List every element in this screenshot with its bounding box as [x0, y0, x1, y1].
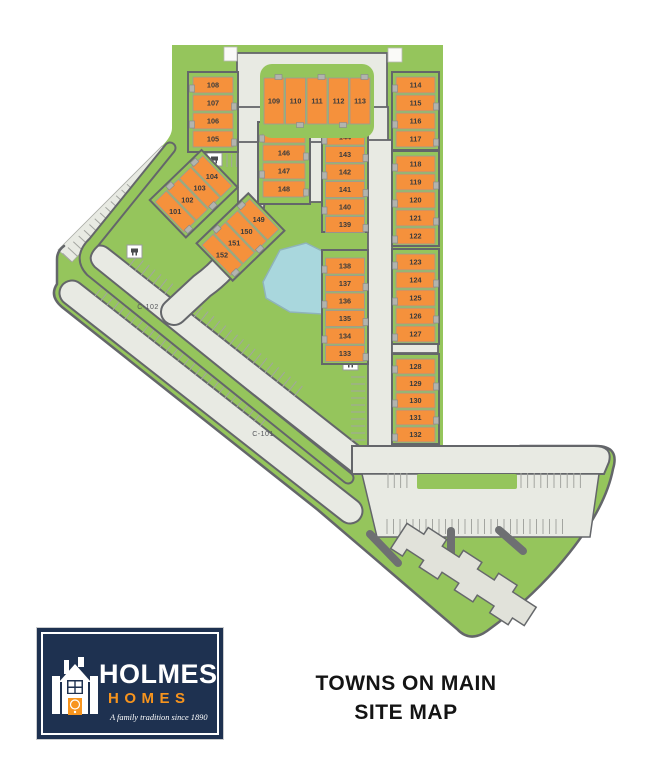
unit-label-112: 112	[333, 97, 345, 106]
block-b3: 114115116117	[392, 72, 439, 150]
block-b9: 128129130131132	[392, 354, 439, 444]
title-line-2: SITE MAP	[276, 701, 536, 725]
unit-label-146: 146	[278, 149, 290, 158]
road-main-vertical	[368, 140, 392, 448]
logo-brand2-text: HOMES	[108, 691, 191, 706]
unit-label-123: 123	[409, 258, 421, 267]
unit-label-115: 115	[410, 99, 422, 108]
parking-island	[417, 474, 517, 489]
site-map-page: 1081071061051141151161171451461471481441…	[0, 0, 659, 768]
unit-label-129: 129	[409, 379, 421, 388]
unit-label-111: 111	[311, 97, 322, 106]
unit-label-101: 101	[169, 207, 181, 216]
unit-label-109: 109	[268, 97, 280, 106]
unit-label-113: 113	[354, 97, 366, 106]
unit-label-135: 135	[339, 314, 351, 323]
unit-label-116: 116	[410, 117, 422, 126]
unit-label-133: 133	[339, 349, 351, 358]
logo-house-icon	[51, 656, 99, 720]
unit-label-137: 137	[339, 279, 351, 288]
title-line-1: TOWNS ON MAIN	[276, 672, 536, 696]
unit-label-142: 142	[339, 168, 351, 177]
unit-label-143: 143	[339, 150, 351, 159]
unit-label-149: 149	[253, 215, 265, 224]
unit-label-148: 148	[278, 185, 290, 194]
unit-label-128: 128	[409, 362, 421, 371]
unit-label-134: 134	[339, 332, 352, 341]
unit-label-126: 126	[409, 312, 421, 321]
block-b7: 138137136135134133	[322, 250, 368, 364]
block-b2: 109110111112113	[260, 64, 374, 138]
road-label-c102: C-102	[137, 304, 159, 311]
unit-label-103: 103	[194, 184, 206, 193]
block-b8: 123124125126127	[392, 249, 439, 344]
unit-label-122: 122	[409, 232, 421, 241]
unit-label-130: 130	[409, 396, 421, 405]
block-b5: 144143142141140139	[322, 124, 368, 233]
unit-label-139: 139	[339, 220, 351, 229]
unit-label-124: 124	[409, 276, 422, 285]
unit-label-107: 107	[207, 99, 219, 108]
road-south	[352, 446, 610, 474]
unit-label-131: 131	[409, 413, 421, 422]
unit-label-132: 132	[409, 430, 421, 439]
block-b1: 108107106105	[188, 72, 238, 152]
logo-brand-text: HOLMES	[99, 661, 219, 688]
driveway-b8-b9	[392, 344, 438, 353]
unit-label-119: 119	[410, 178, 422, 187]
unit-label-120: 120	[409, 196, 421, 205]
unit-label-118: 118	[410, 160, 422, 169]
unit-label-102: 102	[181, 195, 193, 204]
road-label-c101: C-101	[252, 431, 274, 438]
unit-label-151: 151	[228, 239, 240, 248]
page-title: TOWNS ON MAIN SITE MAP	[276, 672, 536, 725]
unit-label-108: 108	[207, 81, 219, 90]
unit-label-104: 104	[206, 172, 219, 181]
sidewalk-stub-left	[224, 47, 237, 61]
unit-label-117: 117	[410, 135, 422, 144]
unit-label-140: 140	[339, 203, 351, 212]
unit-label-106: 106	[207, 117, 219, 126]
unit-label-150: 150	[240, 227, 252, 236]
unit-label-138: 138	[339, 262, 351, 271]
unit-label-125: 125	[409, 294, 421, 303]
logo-tagline-text: A family tradition since 1890	[110, 713, 208, 722]
sidewalk-stub-right	[388, 48, 402, 62]
unit-label-105: 105	[207, 135, 219, 144]
block-b6: 118119120121122	[392, 151, 439, 246]
holmes-homes-logo: HOLMES HOMES A family tradition since 18…	[36, 627, 224, 740]
unit-label-127: 127	[409, 330, 421, 339]
unit-label-110: 110	[290, 97, 302, 106]
unit-label-121: 121	[409, 214, 421, 223]
unit-label-114: 114	[410, 81, 423, 90]
mailbox-kiosk-icon	[127, 245, 142, 258]
unit-label-136: 136	[339, 297, 351, 306]
unit-label-152: 152	[216, 250, 228, 259]
unit-label-147: 147	[278, 167, 290, 176]
unit-label-141: 141	[339, 185, 351, 194]
